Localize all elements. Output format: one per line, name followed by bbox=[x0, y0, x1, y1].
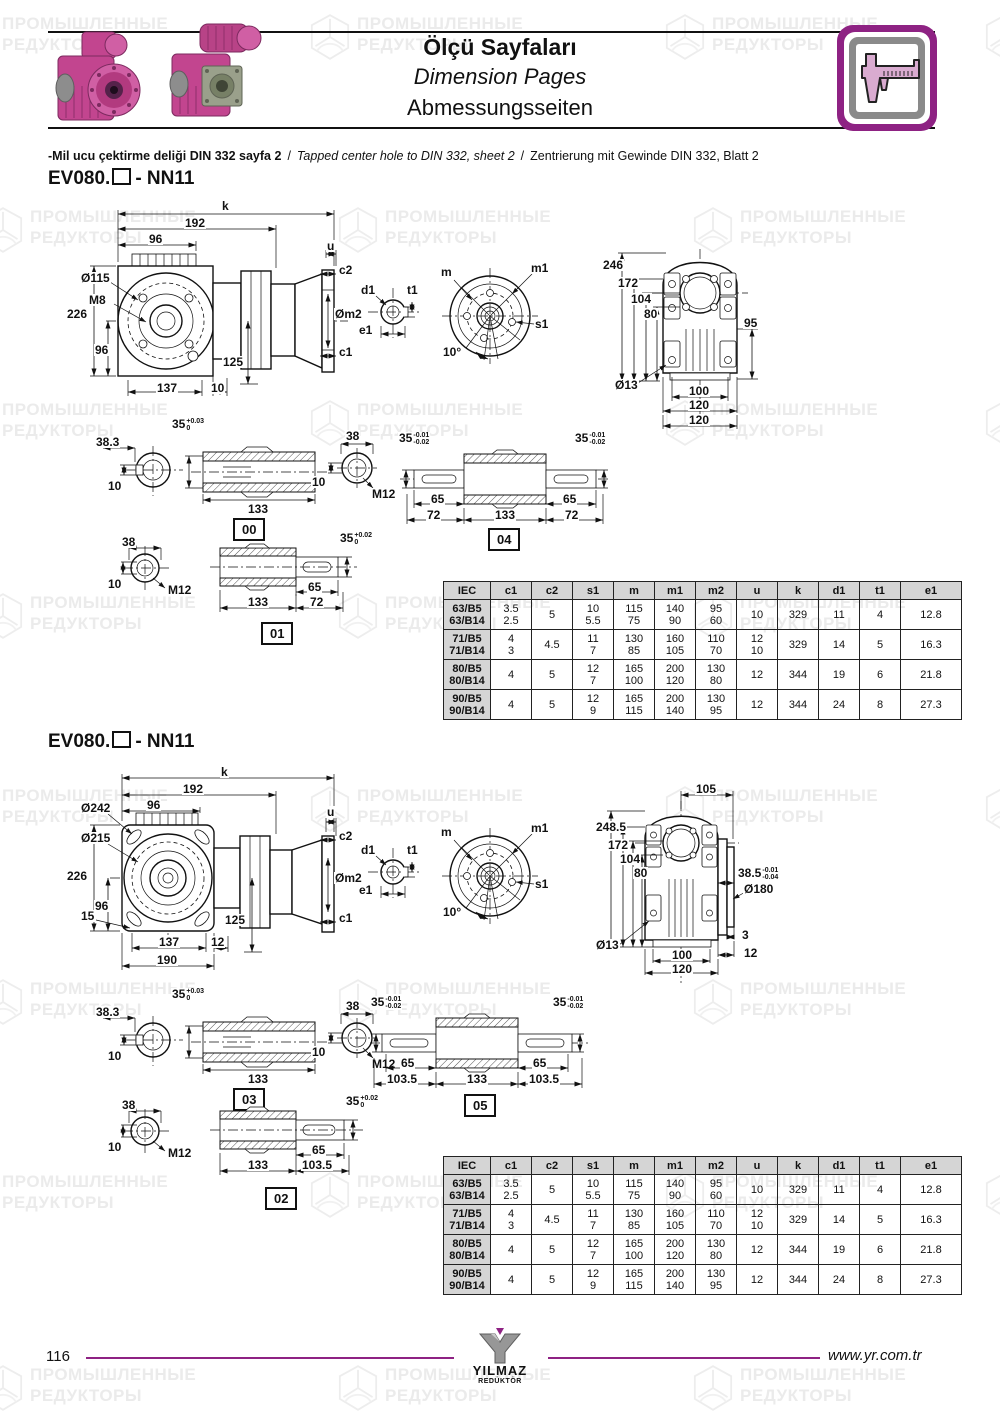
table-row: 90/B590/B1445129165115200140130951234424… bbox=[444, 690, 962, 720]
table-row: 71/B571/B14434.5117130851601051107012103… bbox=[444, 1205, 962, 1235]
dim-label: 133 bbox=[494, 509, 516, 521]
dim-label: 65 bbox=[307, 581, 322, 593]
note-en: Tapped center hole to DIN 332, sheet 2 bbox=[297, 149, 515, 163]
table-cell: 13095 bbox=[696, 690, 737, 720]
dim-label: 137 bbox=[158, 936, 180, 948]
flange-view-drawing-2: m m1 s1 10° bbox=[428, 820, 568, 960]
dim-label: Ø13 bbox=[614, 379, 639, 391]
dim-label: Ø180 bbox=[743, 883, 774, 895]
section1-heading: EV080.- NN11 bbox=[48, 168, 194, 190]
dimension-table-2: IECc1c2s1mm1m2ukd1t1e163/B563/B143.52.55… bbox=[443, 1156, 962, 1295]
table-cell: 344 bbox=[778, 690, 819, 720]
table-cell: 1210 bbox=[737, 630, 778, 660]
table-cell: 4 bbox=[860, 600, 901, 630]
dim-label: 120 bbox=[688, 414, 710, 426]
dim-label: 96 bbox=[148, 233, 163, 245]
table-cell: 14090 bbox=[655, 1175, 696, 1205]
table-col-header: m bbox=[614, 1157, 655, 1175]
dim-label: m bbox=[440, 266, 453, 278]
table-col-header: IEC bbox=[444, 1157, 491, 1175]
table-cell: 6 bbox=[860, 660, 901, 690]
double-shaft-drawing-04: 35-0.01-0.02 35-0.01-0.02 65 65 72 133 7… bbox=[398, 424, 613, 550]
note-de: Zentrierung mit Gewinde DIN 332, Blatt 2 bbox=[530, 149, 759, 163]
table-cell: 200120 bbox=[655, 660, 696, 690]
catalog-page: ПРОМЫШЛЕННЫЕРЕДУКТОРЫ ПРОМЫШЛЕННЫЕРЕДУКТ… bbox=[0, 0, 1000, 1414]
table-cell: 13080 bbox=[696, 660, 737, 690]
dim-label: c1 bbox=[338, 912, 353, 924]
table-cell: 12 bbox=[737, 690, 778, 720]
table-cell: 165115 bbox=[614, 1265, 655, 1295]
dim-label: e1 bbox=[358, 324, 373, 336]
dim-label: k bbox=[220, 766, 229, 778]
table-col-header: d1 bbox=[819, 582, 860, 600]
table-cell: 5 bbox=[860, 630, 901, 660]
table-cell: 4 bbox=[491, 1265, 532, 1295]
table-cell: 80/B580/B14 bbox=[444, 1235, 491, 1265]
table-col-header: c1 bbox=[491, 1157, 532, 1175]
table-col-header: m1 bbox=[655, 1157, 696, 1175]
dim-label: M12 bbox=[167, 1147, 192, 1159]
dim-label: 192 bbox=[184, 217, 206, 229]
dim-label: 10 bbox=[107, 578, 122, 590]
table-cell: 344 bbox=[778, 660, 819, 690]
table-cell: 105.5 bbox=[573, 600, 614, 630]
dim-label: 103.5 bbox=[528, 1073, 560, 1085]
dim-label: 248.5 bbox=[595, 821, 627, 833]
table-col-header: s1 bbox=[573, 1157, 614, 1175]
table-cell: 19 bbox=[819, 660, 860, 690]
table-cell: 13085 bbox=[614, 1205, 655, 1235]
table-cell: 90/B590/B14 bbox=[444, 1265, 491, 1295]
header: Ölçü Sayfaları Dimension Pages Abmessung… bbox=[0, 0, 1000, 146]
table-cell: 117 bbox=[573, 630, 614, 660]
table-cell: 5 bbox=[532, 1235, 573, 1265]
dim-label: 10 bbox=[107, 1050, 122, 1062]
table-col-header: m2 bbox=[696, 582, 737, 600]
dim-label: 10° bbox=[442, 346, 462, 358]
variant-tag: 02 bbox=[265, 1187, 297, 1210]
dim-label: 137 bbox=[156, 382, 178, 394]
table-cell: 165100 bbox=[614, 660, 655, 690]
table-cell: 5 bbox=[532, 1175, 573, 1205]
yilmaz-logo-icon bbox=[472, 1328, 528, 1364]
dim-label: 80 bbox=[643, 308, 658, 320]
dim-label: 10 bbox=[107, 480, 122, 492]
dim-label: 35+0.020 bbox=[345, 1095, 379, 1109]
table-cell: 4 bbox=[491, 1235, 532, 1265]
table-cell: 12.8 bbox=[901, 1175, 962, 1205]
dim-label: 190 bbox=[156, 954, 178, 966]
dim-label: 12 bbox=[743, 947, 758, 959]
table-row: 63/B563/B143.52.55105.511575140909560103… bbox=[444, 1175, 962, 1205]
dim-label: 120 bbox=[688, 399, 710, 411]
dim-label: 103.5 bbox=[301, 1159, 333, 1171]
table-cell: 329 bbox=[778, 600, 819, 630]
table-cell: 63/B563/B14 bbox=[444, 600, 491, 630]
dim-label: 80 bbox=[633, 867, 648, 879]
table-cell: 12 bbox=[737, 1265, 778, 1295]
watermark: ПРОМЫШЛЕННЫЕРЕДУКТОРЫ bbox=[985, 400, 1000, 446]
table-col-header: u bbox=[737, 582, 778, 600]
table-cell: 27.3 bbox=[901, 1265, 962, 1295]
dim-label: 104 bbox=[619, 853, 641, 865]
table-col-header: IEC bbox=[444, 582, 491, 600]
table-cell: 329 bbox=[778, 1175, 819, 1205]
table-cell: 12.8 bbox=[901, 600, 962, 630]
dim-label: e1 bbox=[358, 884, 373, 896]
dim-label: Ø242 bbox=[80, 802, 111, 814]
dim-label: s1 bbox=[534, 878, 549, 890]
dim-label: 226 bbox=[66, 870, 88, 882]
logo-name: YILMAZ bbox=[455, 1364, 545, 1378]
table-cell: 4.5 bbox=[532, 1205, 573, 1235]
table-cell: 5 bbox=[532, 690, 573, 720]
table-cell: 6 bbox=[860, 1235, 901, 1265]
dim-label: 96 bbox=[94, 900, 109, 912]
table-col-header: c2 bbox=[532, 582, 573, 600]
dim-label: 65 bbox=[311, 1144, 326, 1156]
table-cell: 160105 bbox=[655, 630, 696, 660]
dim-label: t1 bbox=[406, 844, 419, 856]
dim-label: 10 bbox=[107, 1141, 122, 1153]
flange-view-drawing-1: m m1 s1 10° bbox=[428, 260, 568, 400]
footer-rule-right bbox=[548, 1357, 820, 1359]
table-cell: 10 bbox=[737, 600, 778, 630]
single-shaft-drawing-01: 38 10 M12 35+0.020 65 133 72 01 bbox=[95, 532, 410, 644]
table-cell: 9560 bbox=[696, 1175, 737, 1205]
note-separator: / bbox=[287, 149, 290, 163]
dim-label: 125 bbox=[222, 356, 244, 368]
table-cell: 90/B590/B14 bbox=[444, 690, 491, 720]
dim-label: 65 bbox=[400, 1057, 415, 1069]
table-cell: 5 bbox=[532, 1265, 573, 1295]
table-cell: 127 bbox=[573, 1235, 614, 1265]
table-cell: 27.3 bbox=[901, 690, 962, 720]
table-cell: 24 bbox=[819, 690, 860, 720]
dim-label: 72 bbox=[564, 509, 579, 521]
table-col-header: c1 bbox=[491, 582, 532, 600]
model-prefix: EV080. bbox=[48, 731, 110, 752]
table-cell: 1210 bbox=[737, 1205, 778, 1235]
footer-rule-left bbox=[86, 1357, 454, 1359]
table-cell: 129 bbox=[573, 690, 614, 720]
dim-label: 35+0.030 bbox=[171, 418, 205, 432]
dim-label: 100 bbox=[671, 949, 693, 961]
dim-label: Ø13 bbox=[595, 939, 620, 951]
dim-label: 72 bbox=[426, 509, 441, 521]
dim-label: 96 bbox=[94, 344, 109, 356]
variant-tag: 01 bbox=[261, 622, 293, 645]
table-col-header: m1 bbox=[655, 582, 696, 600]
footer-logo: YILMAZ REDÜKTÖR bbox=[455, 1328, 545, 1385]
table-cell: 24 bbox=[819, 1265, 860, 1295]
table-cell: 71/B571/B14 bbox=[444, 1205, 491, 1235]
table-col-header: t1 bbox=[860, 1157, 901, 1175]
table-cell: 16.3 bbox=[901, 630, 962, 660]
dim-label: m1 bbox=[530, 822, 549, 834]
dim-label: 12 bbox=[210, 936, 225, 948]
note-separator: / bbox=[521, 149, 524, 163]
table-cell: 71/B571/B14 bbox=[444, 630, 491, 660]
caliper-icon bbox=[836, 24, 938, 132]
dim-label: 38.3 bbox=[95, 436, 120, 448]
table-cell: 9560 bbox=[696, 600, 737, 630]
dim-label: 38.3 bbox=[95, 1006, 120, 1018]
table-cell: 16.3 bbox=[901, 1205, 962, 1235]
table-cell: 344 bbox=[778, 1235, 819, 1265]
dim-label: M12 bbox=[167, 584, 192, 596]
dim-label: c1 bbox=[338, 346, 353, 358]
table-col-header: m2 bbox=[696, 1157, 737, 1175]
hollow-shaft-drawing-00: 38.3 10 35+0.030 133 38 10 M12 00 bbox=[95, 418, 395, 538]
table-col-header: k bbox=[778, 582, 819, 600]
side-view-drawing-2: k 192 96 Ø242 Ø215 226 96 15 137 12 190 … bbox=[80, 766, 395, 996]
table-col-header: e1 bbox=[901, 582, 962, 600]
table-cell: 14 bbox=[819, 1205, 860, 1235]
table-cell: 3.52.5 bbox=[491, 600, 532, 630]
table-cell: 12 bbox=[737, 1235, 778, 1265]
dim-label: 133 bbox=[247, 596, 269, 608]
table-cell: 5 bbox=[860, 1205, 901, 1235]
table-cell: 12 bbox=[737, 660, 778, 690]
dim-label: 192 bbox=[182, 783, 204, 795]
table-row: 80/B580/B1445127165100200120130801234419… bbox=[444, 660, 962, 690]
table-cell: 5 bbox=[532, 660, 573, 690]
table-cell: 11 bbox=[819, 600, 860, 630]
dim-label: 246 bbox=[602, 259, 624, 271]
table-cell: 63/B563/B14 bbox=[444, 1175, 491, 1205]
variant-box-icon bbox=[112, 731, 131, 748]
dim-label: 35-0.01-0.02 bbox=[370, 996, 402, 1010]
dim-label: 226 bbox=[66, 308, 88, 320]
dim-label: 38 bbox=[121, 1099, 136, 1111]
table-cell: 200120 bbox=[655, 1235, 696, 1265]
rear-view-drawing-2: 105 248.5 172 104 80 38.5-0.01-0.04 Ø180… bbox=[595, 783, 885, 988]
table-col-header: t1 bbox=[860, 582, 901, 600]
note-tr: -Mil ucu çektirme deliği DIN 332 sayfa 2 bbox=[48, 149, 281, 163]
table-cell: 14090 bbox=[655, 600, 696, 630]
dim-label: 3 bbox=[741, 929, 750, 941]
table-cell: 5 bbox=[532, 600, 573, 630]
note-line: -Mil ucu çektirme deliği DIN 332 sayfa 2… bbox=[48, 149, 759, 163]
table-cell: 127 bbox=[573, 660, 614, 690]
model-suffix: - NN11 bbox=[135, 168, 194, 189]
table-cell: 14 bbox=[819, 630, 860, 660]
table-col-header: m bbox=[614, 582, 655, 600]
dim-label: 133 bbox=[247, 1073, 269, 1085]
dim-label: 15 bbox=[80, 910, 95, 922]
table-cell: 165100 bbox=[614, 1235, 655, 1265]
table-cell: 8 bbox=[860, 1265, 901, 1295]
watermark: ПРОМЫШЛЕННЫЕРЕДУКТОРЫ bbox=[338, 207, 551, 253]
dim-label: M12 bbox=[371, 488, 396, 500]
single-shaft-drawing-02: 38 10 M12 35+0.020 65 133 103.5 02 bbox=[95, 1093, 415, 1208]
table-cell: 11070 bbox=[696, 1205, 737, 1235]
dim-label: u bbox=[326, 806, 335, 818]
dim-label: Ø115 bbox=[80, 272, 111, 284]
dim-label: 172 bbox=[607, 839, 629, 851]
dim-label: 125 bbox=[224, 914, 246, 926]
dim-label: Ø215 bbox=[80, 832, 111, 844]
dim-label: c2 bbox=[338, 830, 353, 842]
dim-label: 120 bbox=[671, 963, 693, 975]
table-row: 90/B590/B1445129165115200140130951234424… bbox=[444, 1265, 962, 1295]
table-cell: 21.8 bbox=[901, 660, 962, 690]
table-cell: 13095 bbox=[696, 1265, 737, 1295]
table-cell: 10 bbox=[737, 1175, 778, 1205]
dim-label: 65 bbox=[532, 1057, 547, 1069]
side-view-drawing-1: k 192 96 Ø115 M8 226 96 137 10 125 u c2 … bbox=[80, 198, 350, 410]
table-cell: 11575 bbox=[614, 1175, 655, 1205]
dim-label: 65 bbox=[562, 493, 577, 505]
dim-label: m bbox=[440, 826, 453, 838]
table-cell: 11070 bbox=[696, 630, 737, 660]
table-cell: 13085 bbox=[614, 630, 655, 660]
model-suffix: - NN11 bbox=[135, 731, 194, 752]
dim-label: 65 bbox=[430, 493, 445, 505]
dim-label: 95 bbox=[743, 317, 758, 329]
dim-label: k bbox=[221, 200, 230, 212]
table-cell: 11 bbox=[819, 1175, 860, 1205]
table-cell: 200140 bbox=[655, 1265, 696, 1295]
table-col-header: e1 bbox=[901, 1157, 962, 1175]
dim-label: M8 bbox=[88, 294, 107, 306]
table-cell: 344 bbox=[778, 1265, 819, 1295]
table-col-header: u bbox=[737, 1157, 778, 1175]
table-cell: 4 bbox=[491, 690, 532, 720]
model-prefix: EV080. bbox=[48, 168, 110, 189]
footer: 116 YILMAZ REDÜKTÖR www.yr.com.tr bbox=[0, 1320, 1000, 1414]
table-cell: 4 bbox=[860, 1175, 901, 1205]
dim-label: 10 bbox=[311, 1046, 326, 1058]
table-cell: 329 bbox=[778, 1205, 819, 1235]
dim-label: 105 bbox=[695, 783, 717, 795]
dim-label: s1 bbox=[534, 318, 549, 330]
logo-subtitle: REDÜKTÖR bbox=[455, 1378, 545, 1385]
website-link[interactable]: www.yr.com.tr bbox=[828, 1347, 922, 1364]
table-cell: 4.5 bbox=[532, 630, 573, 660]
watermark: ПРОМЫШЛЕННЫЕРЕДУКТОРЫ bbox=[985, 1172, 1000, 1218]
table-col-header: k bbox=[778, 1157, 819, 1175]
table-cell: 43 bbox=[491, 630, 532, 660]
dim-label: 35+0.030 bbox=[171, 988, 205, 1002]
dim-label: m1 bbox=[530, 262, 549, 274]
table-row: 63/B563/B143.52.55105.511575140909560103… bbox=[444, 600, 962, 630]
page-number: 116 bbox=[46, 1348, 70, 1365]
variant-tag: 04 bbox=[488, 528, 520, 551]
table-col-header: c2 bbox=[532, 1157, 573, 1175]
hollow-shaft-drawing-03: 38.3 10 35+0.030 133 38 10 M12 03 bbox=[95, 988, 395, 1108]
table-cell: 21.8 bbox=[901, 1235, 962, 1265]
dim-label: 10 bbox=[210, 382, 225, 394]
dim-label: 35-0.01-0.02 bbox=[574, 432, 606, 446]
dim-label: 96 bbox=[146, 799, 161, 811]
table-row: 80/B580/B1445127165100200120130801234419… bbox=[444, 1235, 962, 1265]
table-col-header: d1 bbox=[819, 1157, 860, 1175]
dim-label: u bbox=[326, 240, 335, 252]
dim-label: 38 bbox=[121, 536, 136, 548]
table-cell: 117 bbox=[573, 1205, 614, 1235]
table-cell: 8 bbox=[860, 690, 901, 720]
table-cell: 4 bbox=[491, 660, 532, 690]
dim-label: d1 bbox=[360, 284, 376, 296]
table-cell: 13080 bbox=[696, 1235, 737, 1265]
table-cell: 200140 bbox=[655, 690, 696, 720]
rear-view-drawing-1: 246 172 104 80 95 Ø13 100 120 120 bbox=[600, 233, 810, 433]
dim-label: 35+0.020 bbox=[339, 532, 373, 546]
dim-label: 38 bbox=[345, 430, 360, 442]
table-row: 71/B571/B14434.5117130851601051107012103… bbox=[444, 630, 962, 660]
dim-label: 133 bbox=[247, 503, 269, 515]
table-cell: 165115 bbox=[614, 690, 655, 720]
shaft-end-detail-1: d1 t1 e1 bbox=[356, 276, 436, 354]
table-cell: 43 bbox=[491, 1205, 532, 1235]
dimension-table-1: IECc1c2s1mm1m2ukd1t1e163/B563/B143.52.55… bbox=[443, 581, 962, 720]
table-cell: 11575 bbox=[614, 600, 655, 630]
table-col-header: s1 bbox=[573, 582, 614, 600]
dim-label: 38.5-0.01-0.04 bbox=[737, 867, 779, 881]
dim-label: 10° bbox=[442, 906, 462, 918]
dim-label: 38 bbox=[345, 1000, 360, 1012]
variant-box-icon bbox=[112, 168, 131, 185]
dim-label: d1 bbox=[360, 844, 376, 856]
table-cell: 3.52.5 bbox=[491, 1175, 532, 1205]
dim-label: 10 bbox=[311, 476, 326, 488]
dim-label: 103.5 bbox=[386, 1073, 418, 1085]
dim-label: t1 bbox=[406, 284, 419, 296]
table-cell: 80/B580/B14 bbox=[444, 660, 491, 690]
table-cell: 329 bbox=[778, 630, 819, 660]
dim-label: 100 bbox=[688, 385, 710, 397]
table-cell: 129 bbox=[573, 1265, 614, 1295]
dim-label: 104 bbox=[630, 293, 652, 305]
watermark: ПРОМЫШЛЕННЫЕРЕДУКТОРЫ bbox=[985, 786, 1000, 832]
dim-label: 35-0.01-0.02 bbox=[552, 996, 584, 1010]
section2-heading: EV080.- NN11 bbox=[48, 731, 194, 753]
dim-label: 133 bbox=[247, 1159, 269, 1171]
dim-label: c2 bbox=[338, 264, 353, 276]
dim-label: 133 bbox=[466, 1073, 488, 1085]
dim-label: 72 bbox=[309, 596, 324, 608]
variant-tag: 05 bbox=[464, 1094, 496, 1117]
table-cell: 19 bbox=[819, 1235, 860, 1265]
table-cell: 105.5 bbox=[573, 1175, 614, 1205]
shaft-end-detail-2: d1 t1 e1 bbox=[356, 836, 436, 914]
table-cell: 160105 bbox=[655, 1205, 696, 1235]
dim-label: 172 bbox=[617, 277, 639, 289]
dim-label: 35-0.01-0.02 bbox=[398, 432, 430, 446]
